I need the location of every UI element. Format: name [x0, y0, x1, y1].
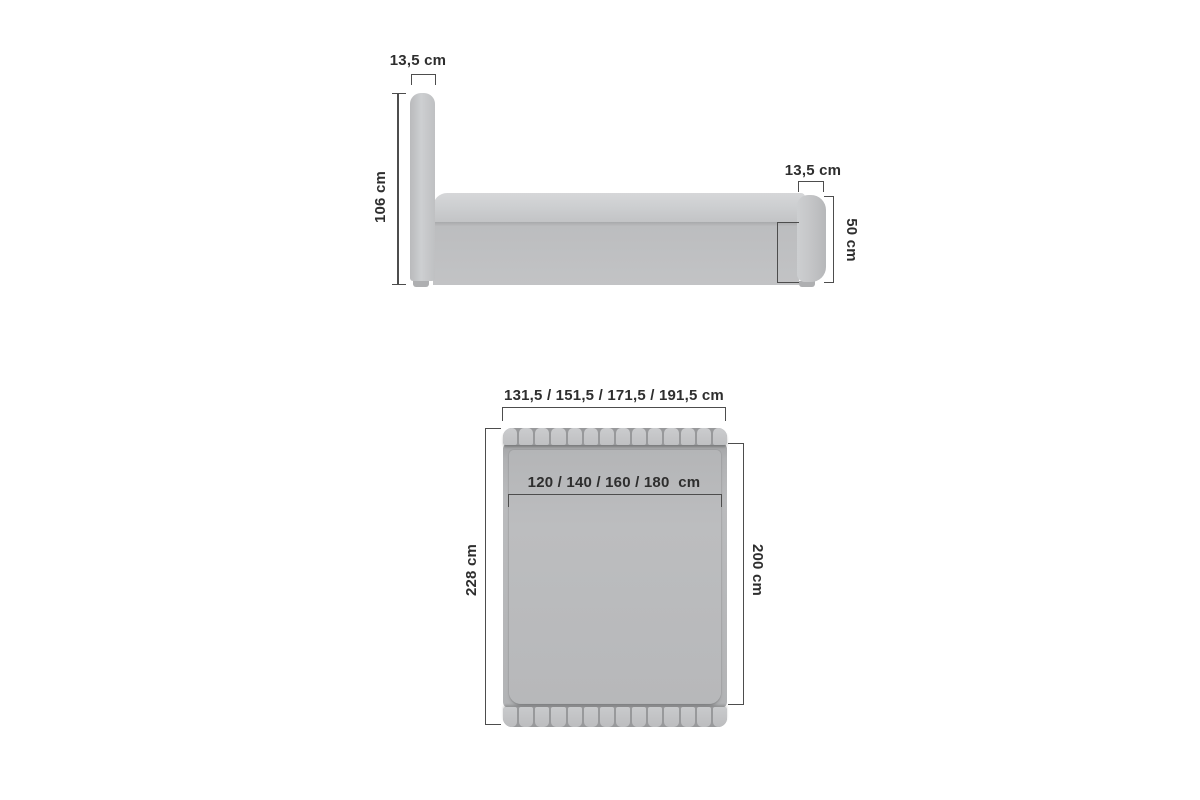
- dimension-diagram: 13,5 cm 106 cm 13,5 cm 50 cm 33,5 cm 131…: [0, 0, 1200, 800]
- total-width-label: 131,5 / 151,5 / 171,5 / 191,5 cm: [464, 387, 764, 405]
- mattress-width-dimension-line: [508, 494, 722, 507]
- upholstery-segment: [503, 707, 517, 727]
- upholstery-segment: [568, 428, 582, 445]
- upholstery-segment: [600, 707, 614, 727]
- upholstery-segment: [584, 707, 598, 727]
- upholstery-segment: [648, 707, 662, 727]
- upholstery-segment: [648, 428, 662, 445]
- headboard-top: [503, 428, 727, 445]
- bed-base-side: [433, 222, 799, 285]
- upholstery-segment: [551, 707, 565, 727]
- upholstery-segment: [713, 428, 727, 445]
- upholstery-segment: [616, 707, 630, 727]
- upholstery-segment: [584, 428, 598, 445]
- upholstery-segment: [697, 428, 711, 445]
- upholstery-segment: [519, 428, 533, 445]
- upholstery-segment: [664, 428, 678, 445]
- upholstery-segment: [713, 707, 727, 727]
- upholstery-segment: [664, 707, 678, 727]
- headboard-leg: [413, 280, 429, 287]
- upholstery-segment: [503, 428, 517, 445]
- upholstery-segment: [697, 707, 711, 727]
- upholstery-segment: [519, 707, 533, 727]
- mattress-length-label: 200 cm: [748, 530, 766, 610]
- upholstery-segment: [681, 428, 695, 445]
- mattress-side: [433, 193, 805, 223]
- headboard-side: [410, 93, 435, 281]
- mattress-length-dimension-line: [728, 443, 744, 705]
- total-length-dimension-line: [485, 428, 501, 725]
- upholstery-segment: [616, 428, 630, 445]
- total-width-bracket: [502, 407, 726, 421]
- upholstery-segment: [535, 428, 549, 445]
- base-height-dimension-line: [777, 222, 799, 283]
- mattress-width-label: 120 / 140 / 160 / 180 cm: [464, 474, 764, 492]
- footboard-top: [503, 707, 727, 727]
- headboard-height-dimension-line: [392, 93, 406, 285]
- upholstery-segment: [551, 428, 565, 445]
- upholstery-segment: [600, 428, 614, 445]
- top-view: 131,5 / 151,5 / 171,5 / 191,5 cm 120 / 1…: [0, 0, 1200, 800]
- upholstery-segment: [632, 707, 646, 727]
- footboard-side: [797, 195, 826, 282]
- upholstery-segment: [632, 428, 646, 445]
- total-length-label: 228 cm: [463, 530, 481, 610]
- upholstery-segment: [535, 707, 549, 727]
- footboard-height-dimension-line: [824, 196, 834, 283]
- upholstery-segment: [568, 707, 582, 727]
- upholstery-segment: [681, 707, 695, 727]
